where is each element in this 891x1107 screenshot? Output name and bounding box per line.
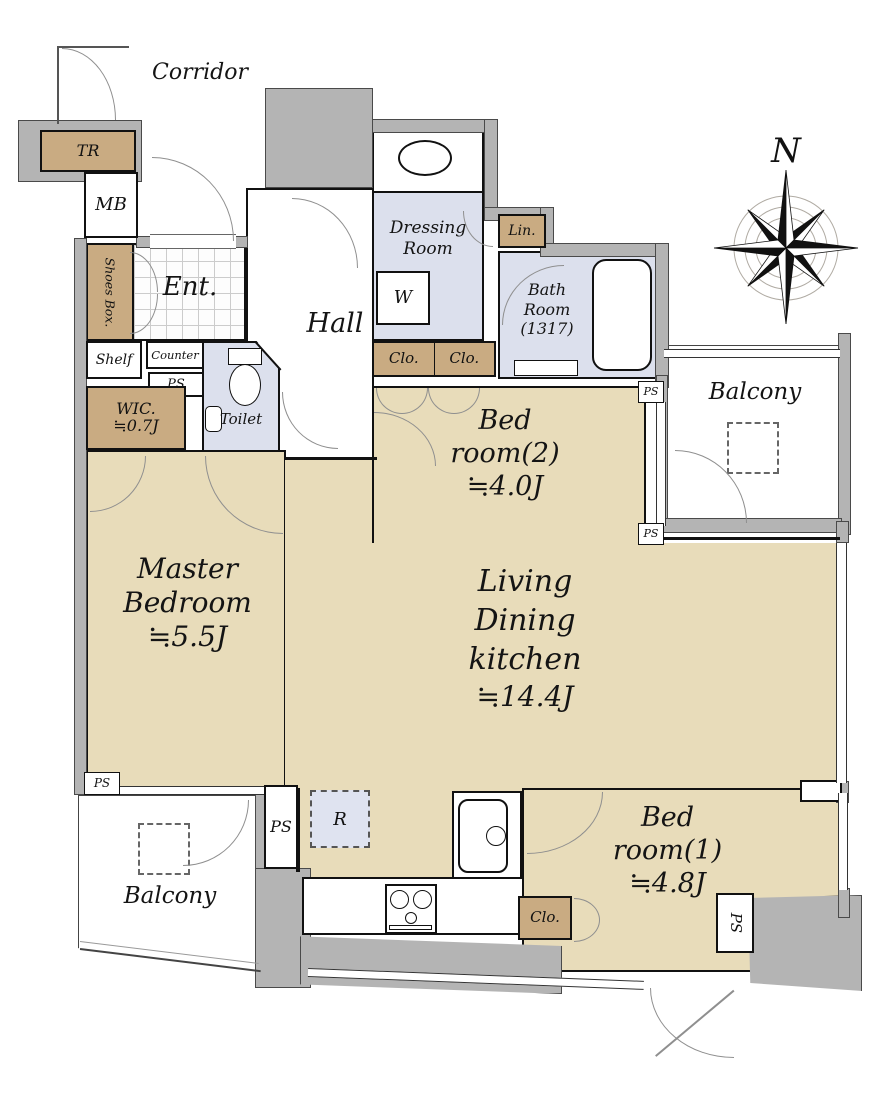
wic-box: WIC. ≒0.7J: [86, 386, 186, 450]
ps-label: PS: [727, 913, 743, 933]
ps-label: PS: [270, 819, 292, 836]
bedroom1-label: Bed room(1) ≒4.8J: [555, 802, 780, 901]
linen-box: Lin.: [498, 214, 546, 248]
ps-label: PS: [644, 386, 659, 398]
meter-box-label: MB: [95, 196, 127, 215]
hall-label: Hall: [288, 308, 382, 341]
wall-top-block: [265, 88, 373, 188]
stove-icon: [385, 884, 437, 934]
corridor-door-arc: [62, 48, 116, 120]
bath-step: [514, 360, 578, 376]
shoes-box: Shoes Box.: [88, 245, 134, 339]
closet-bedroom1: Clo.: [518, 896, 572, 940]
counter-box: Counter: [146, 341, 204, 369]
dressing-room-label: Dressing Room: [374, 218, 482, 259]
wall-balcony-tr-pier: [838, 333, 851, 535]
balcony-bottom-left-label: Balcony: [95, 882, 245, 910]
stove-grill-bar: [389, 925, 432, 930]
corridor-outline-v: [57, 46, 59, 124]
trunk-room-box: TR: [40, 130, 136, 172]
balcony-top-right-label: Balcony: [680, 378, 830, 406]
window-ldk-right: [836, 543, 847, 783]
bath-room-label: Bath Room (1317): [502, 280, 592, 339]
washbasin-icon: [398, 140, 452, 176]
wall-left-outer: [74, 238, 87, 795]
entrance-label: Ent.: [140, 272, 240, 304]
ps-box-bedroom2-top: PS: [638, 381, 664, 403]
counter-label: Counter: [151, 349, 198, 361]
compass-rose: N: [694, 120, 879, 335]
floor-plan: Corridor Shoes Box. Ent. TR MB Hall: [0, 0, 891, 1107]
toilet-label: Toilet: [206, 410, 276, 428]
ps-box-kitchen: PS: [264, 785, 298, 869]
wall-band-bath-top: [540, 243, 668, 257]
ldk-label: Living Dining kitchen ≒14.4J: [410, 562, 640, 715]
ps-box-bedroom2-bottom: PS: [638, 523, 664, 545]
wall-right-dressing: [484, 119, 498, 221]
linen-label: Lin.: [508, 224, 535, 239]
ldk-passage-top-wall: [285, 457, 377, 460]
meter-box: MB: [84, 172, 138, 238]
compass-north-label: N: [770, 131, 802, 171]
toilet-tank-icon: [228, 348, 262, 365]
shelf-label: Shelf: [96, 353, 133, 368]
refrigerator-space: R: [310, 790, 370, 848]
closet-bedroom1-label: Clo.: [530, 910, 560, 926]
bedroom2-label: Bed room(2) ≒4.0J: [390, 405, 620, 504]
shelf-box: Shelf: [86, 341, 142, 379]
washing-machine-label: W: [394, 289, 413, 308]
ac-unit-outline-top-right: [727, 422, 779, 474]
wall-right-bath: [655, 243, 669, 388]
trunk-room-label: TR: [77, 143, 100, 160]
wall-band-washbasin: [372, 119, 497, 133]
ps-box-balcony: PS: [84, 772, 120, 795]
faucet-icon: [486, 826, 506, 846]
corridor-label: Corridor: [140, 60, 260, 87]
wall-bedroom1-right-pier: [838, 888, 850, 918]
window-master-bottom: [120, 786, 286, 795]
ps-label: PS: [94, 777, 110, 790]
entrance-door-arc: [152, 157, 234, 241]
ps-label: PS: [644, 528, 659, 540]
stove-burner-right: [413, 890, 432, 909]
wic-label: WIC. ≒0.7J: [113, 401, 158, 435]
exit-door-arc: [650, 988, 734, 1058]
balcony-top-right-rail: [664, 349, 840, 358]
closet-pair: Clo. Clo.: [372, 341, 496, 377]
bathtub-icon: [592, 259, 652, 371]
window-bedroom2-balcony: [656, 402, 666, 526]
refrigerator-label: R: [333, 809, 347, 830]
toilet-bowl-icon: [229, 364, 261, 406]
closet-left-label: Clo.: [374, 351, 434, 367]
compass-cardinal-points: [714, 170, 858, 324]
shoes-box-label: Shoes Box.: [103, 257, 118, 327]
window-bedroom1-right: [838, 793, 848, 890]
bedroom1-top-notch: [800, 780, 842, 802]
stove-burner-small: [405, 912, 417, 924]
closet-right-label: Clo.: [435, 351, 495, 367]
ldk-top-right-wall: [644, 537, 840, 540]
master-bedroom-label: Master Bedroom ≒5.5J: [95, 552, 280, 654]
ps-box-bedroom1: PS: [716, 893, 754, 953]
stove-burner-left: [390, 890, 409, 909]
washing-machine-box: W: [376, 271, 430, 325]
